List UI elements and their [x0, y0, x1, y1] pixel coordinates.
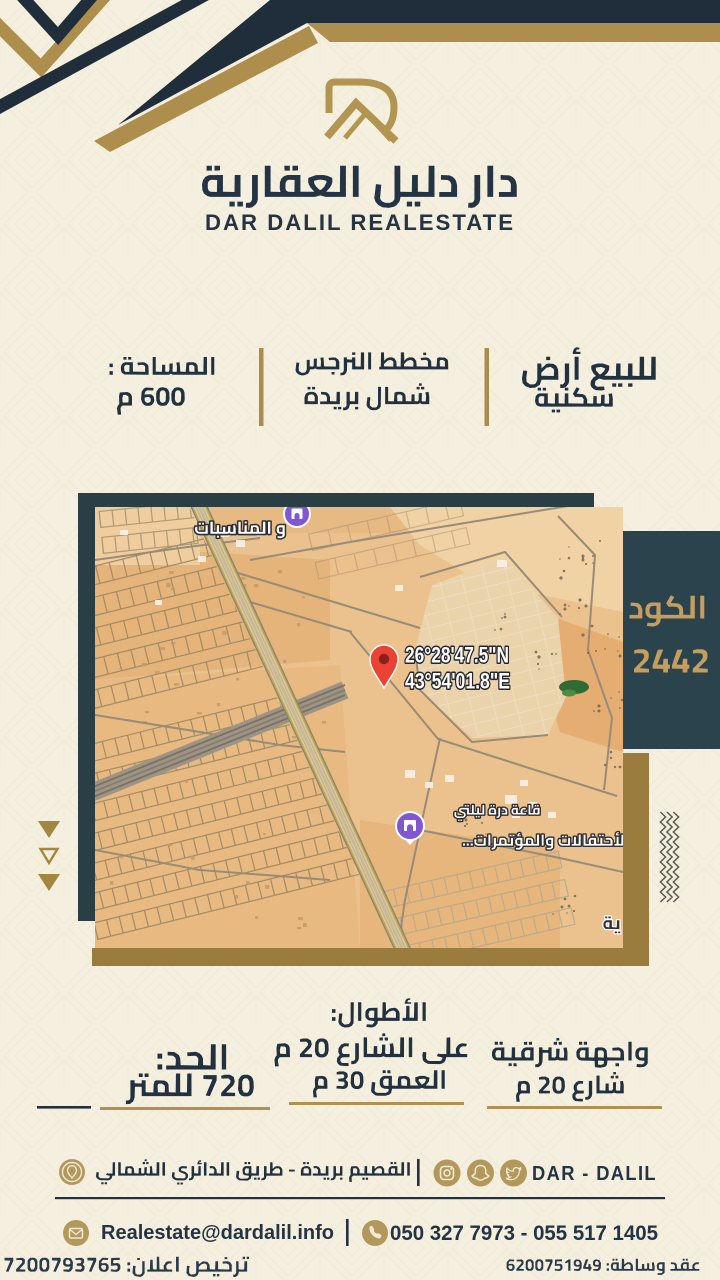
- svg-text:DAR DALIL REALESTATE: DAR DALIL REALESTATE: [205, 210, 515, 235]
- svg-text:26°28'47.5"N: 26°28'47.5"N: [405, 643, 509, 668]
- svg-text:43°54'01.8"E: 43°54'01.8"E: [405, 669, 510, 694]
- svg-text:DAR - DALIL: DAR - DALIL: [532, 1163, 657, 1185]
- svg-text:050 327 7973 - 055 517 1405: 050 327 7973 - 055 517 1405: [390, 1222, 658, 1245]
- svg-text:Realestate@dardalil.info: Realestate@dardalil.info: [101, 1222, 334, 1244]
